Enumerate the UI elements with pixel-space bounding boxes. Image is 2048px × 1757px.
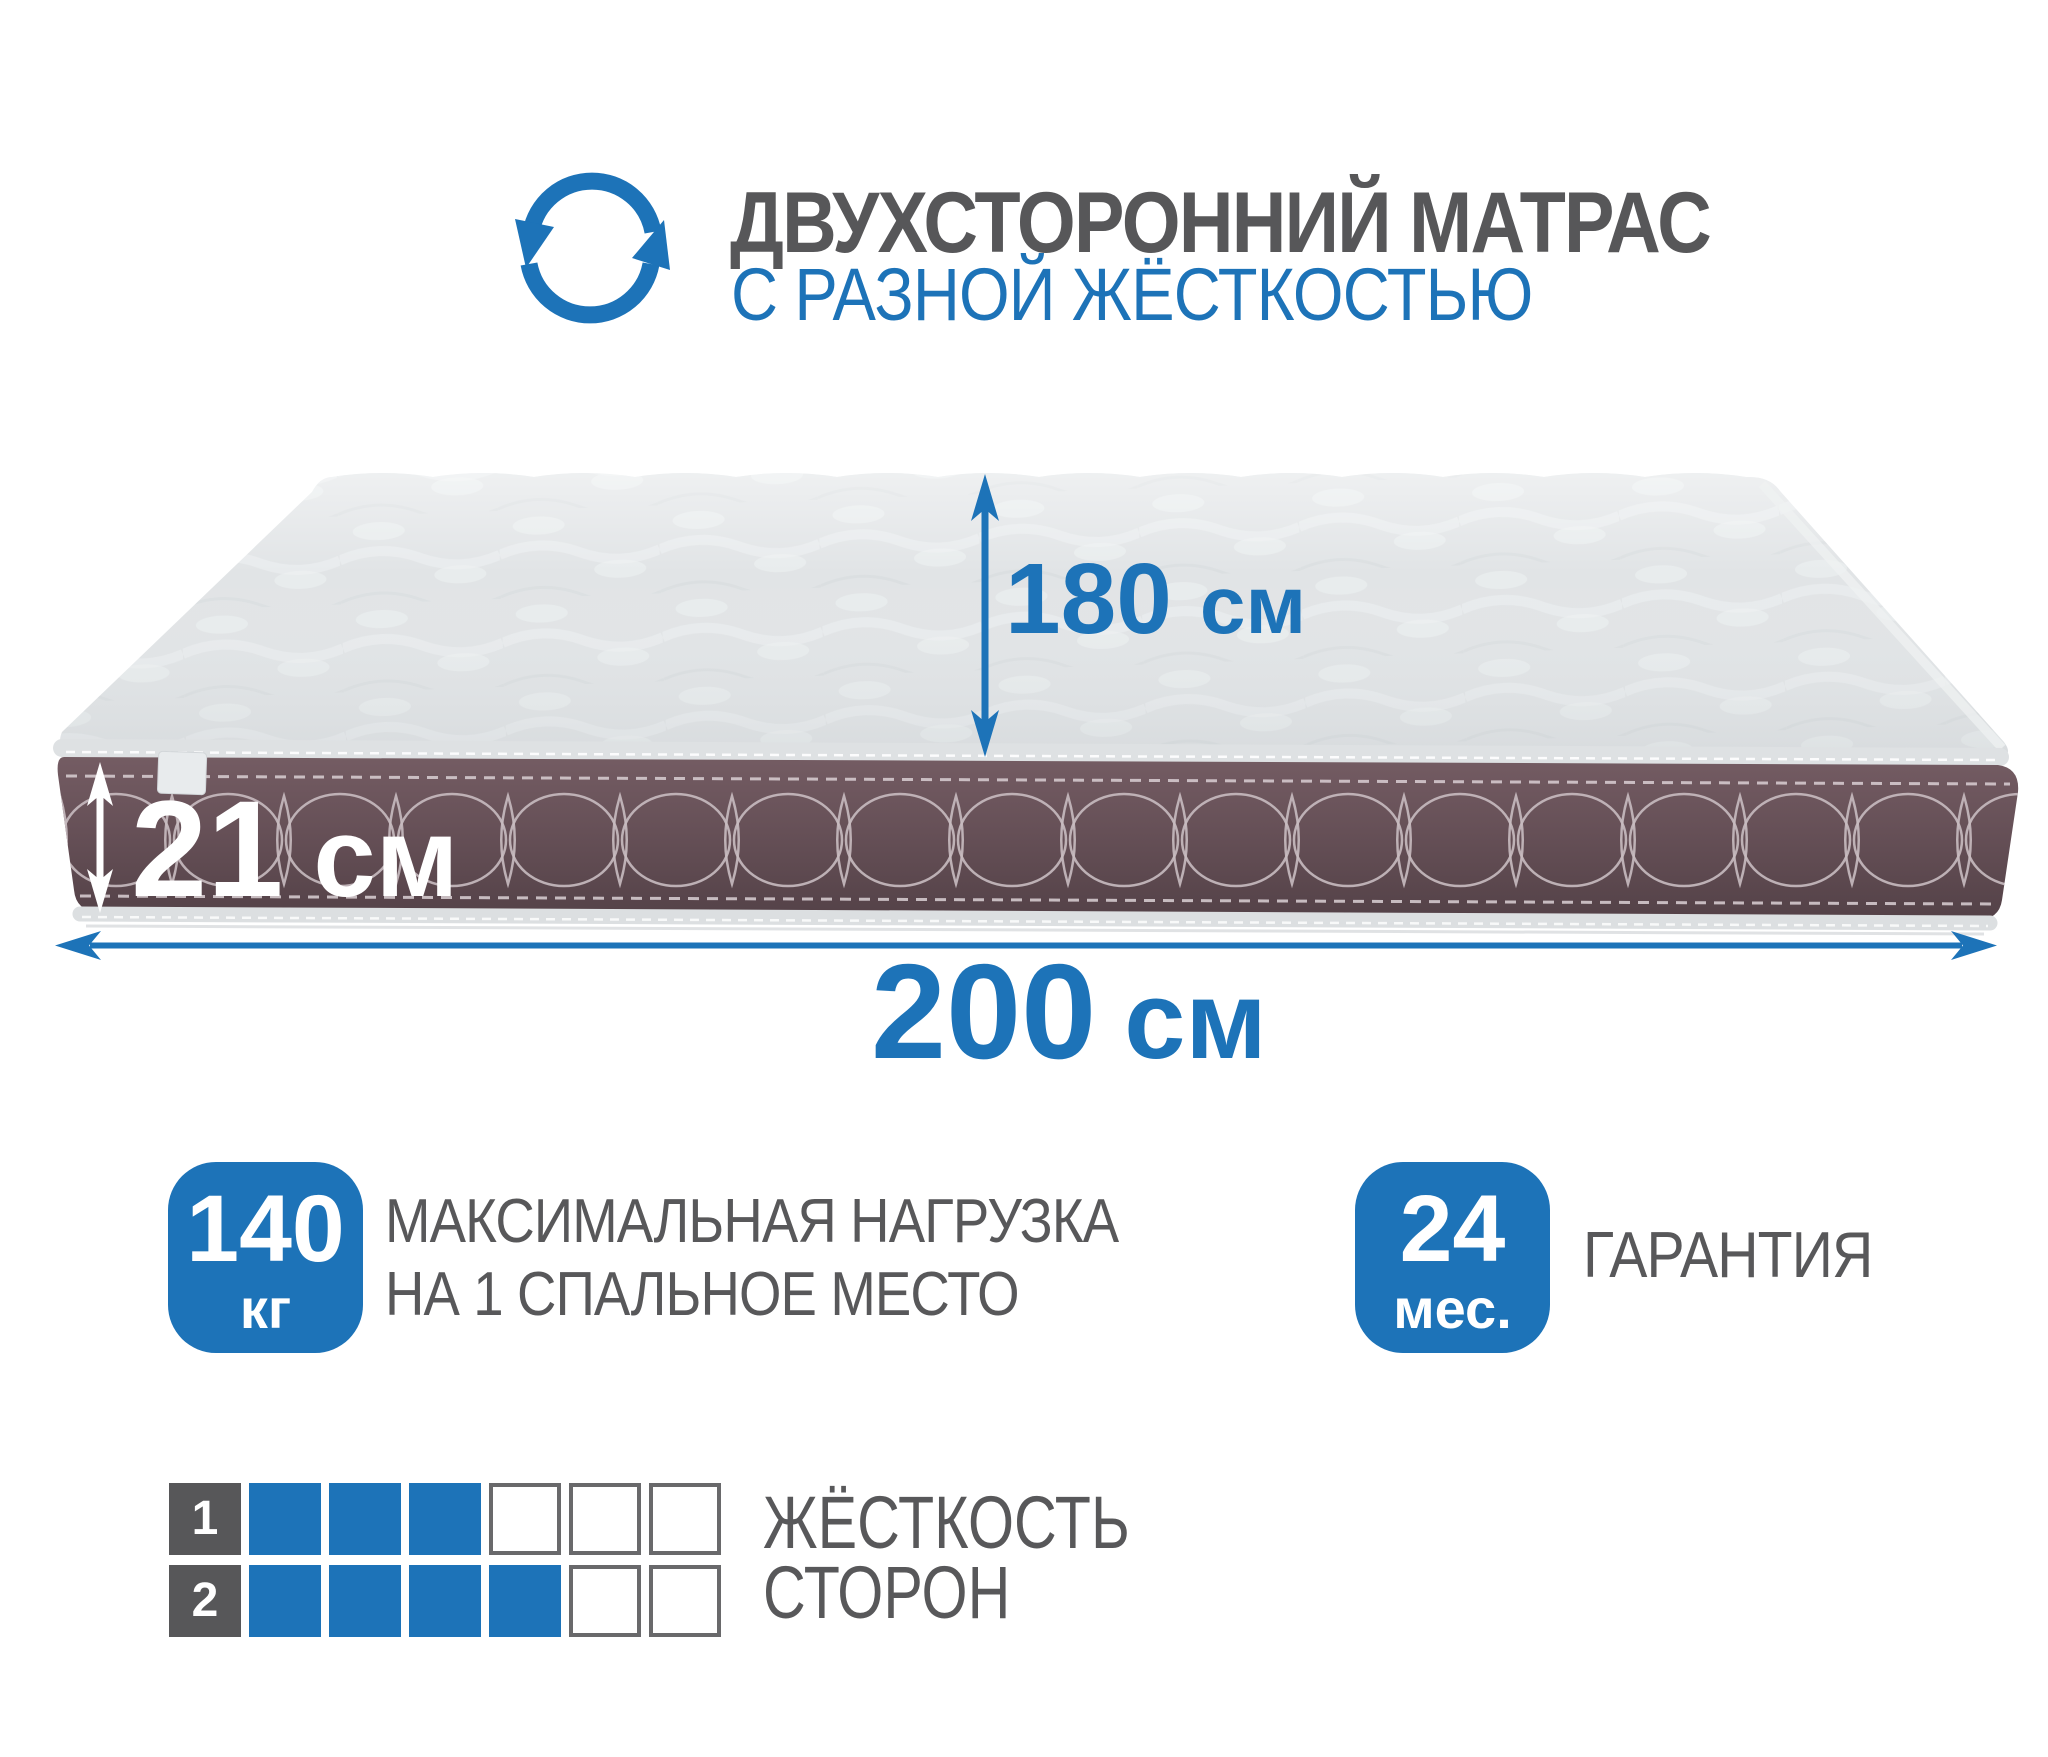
firmness-cell-filled xyxy=(249,1483,321,1555)
firmness-cell-filled xyxy=(329,1483,401,1555)
max-load-unit: кг xyxy=(168,1281,363,1337)
max-load-value: 140 xyxy=(168,1182,363,1277)
firmness-row: 1 xyxy=(169,1483,721,1555)
thickness-value: 21 xyxy=(131,773,283,926)
firmness-cell-filled xyxy=(329,1565,401,1637)
length-value: 200 xyxy=(871,936,1096,1087)
depth-unit: см xyxy=(1200,560,1306,651)
firmness-cell-filled xyxy=(249,1565,321,1637)
thickness-dimension-label: 21см xyxy=(131,781,459,918)
page-subtitle: С РАЗНОЙ ЖЁСТКОСТЬЮ xyxy=(731,258,1532,332)
length-unit: см xyxy=(1124,959,1267,1082)
warranty-label: ГАРАНТИЯ xyxy=(1583,1222,1872,1287)
thickness-unit: см xyxy=(313,795,458,920)
flip-rotate-arrows-icon xyxy=(515,181,670,315)
warranty-unit: мес. xyxy=(1355,1281,1550,1337)
firmness-cell-filled xyxy=(409,1565,481,1637)
firmness-label-line2: СТОРОН xyxy=(763,1558,1130,1628)
warranty-value: 24 xyxy=(1355,1182,1550,1277)
firmness-cell-empty xyxy=(569,1565,641,1637)
firmness-row: 2 xyxy=(169,1565,721,1637)
firmness-side-label: 1 xyxy=(169,1483,241,1555)
firmness-cell-filled xyxy=(409,1483,481,1555)
depth-dimension-label: 180см xyxy=(1005,549,1306,649)
max-load-label: МАКСИМАЛЬНАЯ НАГРУЗКА НА 1 СПАЛЬНОЕ МЕСТ… xyxy=(385,1185,1118,1331)
firmness-cell-empty xyxy=(649,1483,721,1555)
depth-value: 180 xyxy=(1005,543,1172,655)
firmness-label: ЖЁСТКОСТЬ СТОРОН xyxy=(763,1488,1130,1628)
firmness-cell-filled xyxy=(489,1565,561,1637)
length-dimension-label: 200см xyxy=(871,944,1267,1079)
max-load-badge: 140 кг xyxy=(168,1162,363,1353)
mattress-infographic: ДВУХСТОРОННИЙ МАТРАС С РАЗНОЙ ЖЁСТКОСТЬЮ… xyxy=(0,0,2048,1757)
max-load-label-line1: МАКСИМАЛЬНАЯ НАГРУЗКА xyxy=(385,1185,1118,1258)
max-load-label-line2: НА 1 СПАЛЬНОЕ МЕСТО xyxy=(385,1258,1118,1331)
firmness-cell-empty xyxy=(489,1483,561,1555)
firmness-cell-empty xyxy=(569,1483,641,1555)
warranty-badge: 24 мес. xyxy=(1355,1162,1550,1353)
firmness-grid: 12 xyxy=(169,1483,721,1647)
firmness-side-label: 2 xyxy=(169,1565,241,1637)
firmness-label-line1: ЖЁСТКОСТЬ xyxy=(763,1488,1130,1558)
firmness-cell-empty xyxy=(649,1565,721,1637)
